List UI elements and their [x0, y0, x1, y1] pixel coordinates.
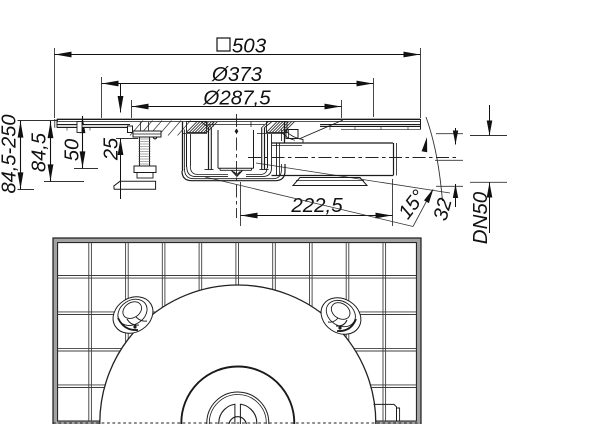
svg-text:84,5: 84,5: [29, 132, 51, 172]
svg-text:84,5-250: 84,5-250: [0, 115, 21, 194]
svg-text:Ø287,5: Ø287,5: [202, 86, 271, 109]
svg-text:503: 503: [232, 35, 267, 58]
svg-text:50: 50: [62, 139, 84, 161]
svg-text:DN50: DN50: [469, 191, 492, 244]
svg-text:Ø373: Ø373: [211, 63, 263, 86]
svg-text:222,5: 222,5: [290, 194, 343, 217]
svg-text:25: 25: [101, 137, 123, 161]
